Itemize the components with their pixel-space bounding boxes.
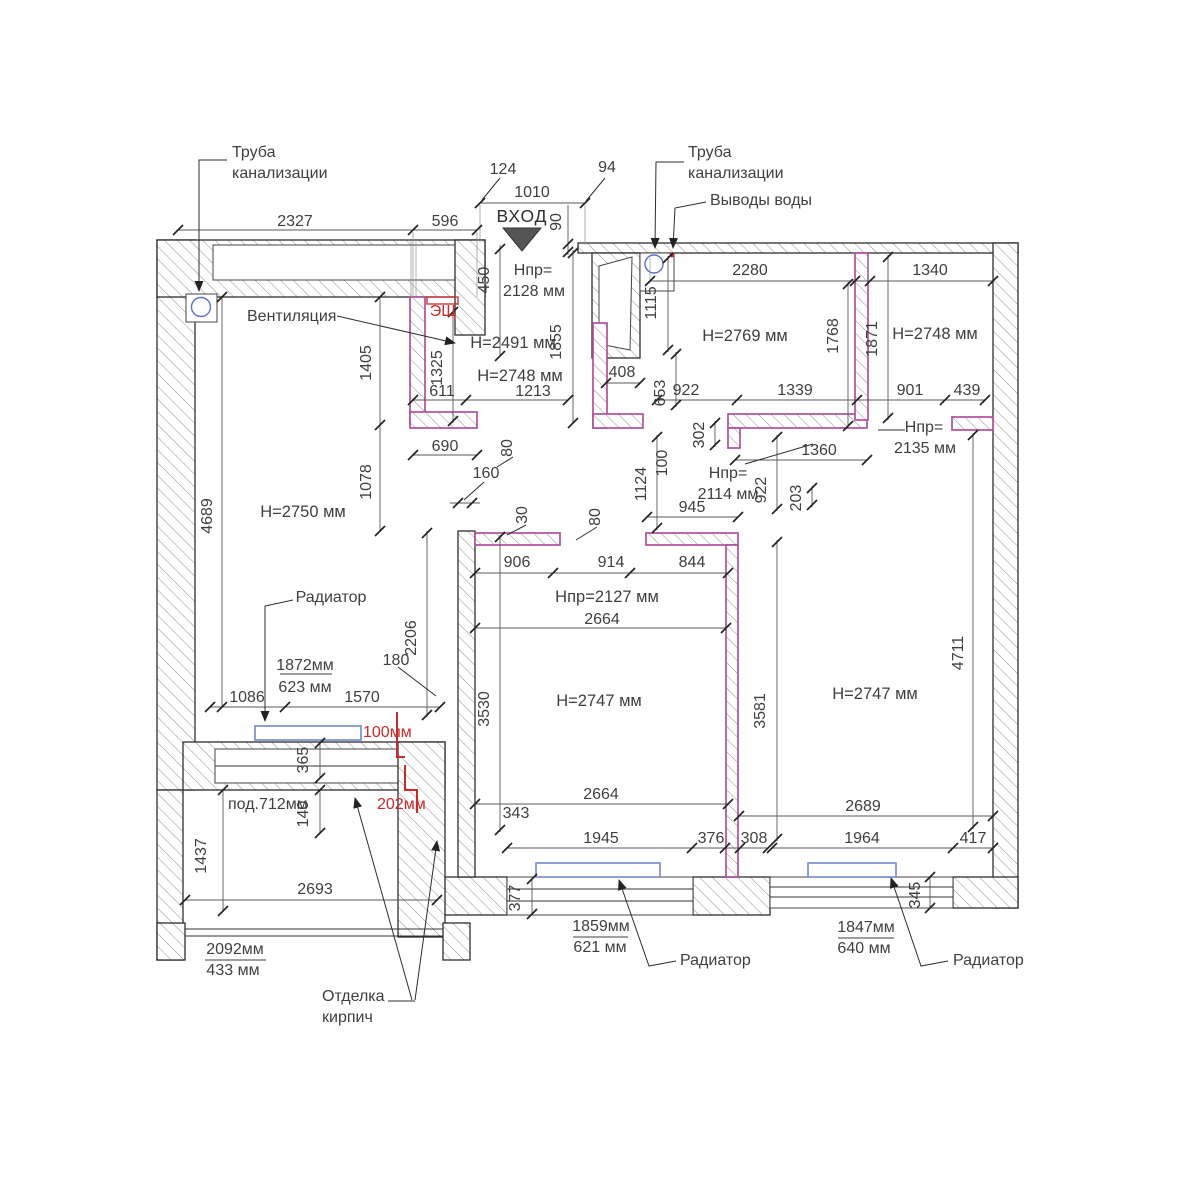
radiator-center bbox=[536, 863, 660, 877]
dim-3581: 3581 bbox=[752, 693, 769, 729]
dim-2693: 2693 bbox=[297, 881, 333, 898]
dim-1570: 1570 bbox=[344, 689, 380, 706]
dim-1964: 1964 bbox=[844, 830, 880, 847]
partition-bath-left bbox=[410, 297, 425, 425]
dim-914: 914 bbox=[598, 554, 625, 571]
label-radiator-left: Радиатор bbox=[296, 589, 367, 606]
label-brick-finish-1: Отделка bbox=[322, 988, 385, 1005]
wall-center-room-left bbox=[458, 531, 475, 877]
dim-653: 653 bbox=[652, 380, 669, 407]
red-step-top-label: 100мм bbox=[363, 724, 412, 741]
dim-1945: 1945 bbox=[583, 830, 619, 847]
dim-408: 408 bbox=[609, 364, 636, 381]
wall-top-right-thin bbox=[578, 243, 1018, 253]
floor-plan-drawing: Труба канализации Труба канализации Выво… bbox=[0, 0, 1200, 1201]
dim-439: 439 bbox=[954, 382, 981, 399]
dim-30: 30 bbox=[514, 506, 531, 524]
dim-377: 377 bbox=[507, 885, 524, 912]
partition-hall-stub bbox=[728, 428, 740, 448]
wall-pier-bottom-left bbox=[440, 877, 507, 915]
dim-2206: 2206 bbox=[403, 620, 420, 656]
dim-140: 140 bbox=[295, 801, 312, 828]
window-bay-center bbox=[507, 877, 693, 915]
opening-hall-label: Hпр= bbox=[709, 465, 747, 482]
height-top-right-room: H=2748 мм bbox=[892, 325, 978, 343]
dim-2664-top: 2664 bbox=[584, 611, 620, 628]
sewer-pipe-right-icon bbox=[645, 255, 663, 273]
opening-entry-value: 2128 мм bbox=[503, 283, 565, 300]
height-right-room: H=2747 мм bbox=[832, 685, 918, 703]
partition-center-right bbox=[726, 545, 738, 877]
dim-1124: 1124 bbox=[633, 467, 650, 502]
dim-302: 302 bbox=[691, 422, 708, 449]
dim-1340: 1340 bbox=[912, 262, 948, 279]
label-brick-finish-2: кирпич bbox=[322, 1009, 373, 1026]
wall-right bbox=[993, 243, 1018, 908]
radiator-left bbox=[255, 726, 361, 740]
label-sewer-right-1: Труба bbox=[688, 144, 732, 161]
label-sewer-left-2: канализации bbox=[232, 165, 328, 182]
red-step-bottom-label: 202мм bbox=[377, 796, 426, 813]
dim-4689: 4689 bbox=[199, 498, 216, 534]
dim-203: 203 bbox=[788, 485, 805, 512]
dim-124: 124 bbox=[490, 161, 517, 178]
opening-center-door: Hпр=2127 мм bbox=[555, 588, 659, 606]
label-electrical-panel: ЭЩ bbox=[430, 303, 457, 320]
window-niche-top bbox=[213, 245, 455, 280]
height-left-room: H=2750 мм bbox=[260, 503, 346, 521]
partition-center-top-left bbox=[475, 533, 560, 545]
dim-1213: 1213 bbox=[515, 383, 551, 400]
opening-right-label: Hпр= bbox=[905, 419, 943, 436]
dim-922-top: 922 bbox=[673, 382, 700, 399]
dim-2664-bottom: 2664 bbox=[583, 786, 619, 803]
dim-2689: 2689 bbox=[845, 798, 881, 815]
dim-80-b: 80 bbox=[587, 508, 604, 526]
dim-690: 690 bbox=[432, 438, 459, 455]
wall-corner-bottom-right bbox=[953, 877, 1018, 908]
partition-right-door-stub bbox=[952, 417, 993, 430]
radiator-loggia-height: 433 мм bbox=[206, 962, 259, 979]
dim-160: 160 bbox=[473, 465, 500, 482]
dim-180: 180 bbox=[383, 652, 410, 669]
partition-shaft-left bbox=[593, 323, 607, 428]
partition-hall-left bbox=[593, 414, 643, 428]
dim-906: 906 bbox=[504, 554, 531, 571]
dim-844: 844 bbox=[679, 554, 706, 571]
radiator-center-length: 1859мм bbox=[572, 918, 630, 935]
label-radiator-right: Радиатор bbox=[953, 952, 1024, 969]
label-sewer-right-2: канализации bbox=[688, 165, 784, 182]
partition-center-top-right bbox=[646, 533, 738, 545]
wall-loggia-corner-left bbox=[157, 923, 185, 960]
dim-450: 450 bbox=[476, 267, 493, 294]
radiator-left-length: 1872мм bbox=[276, 657, 334, 674]
radiator-center-height: 621 мм bbox=[573, 939, 626, 956]
dim-922-vert: 922 bbox=[753, 477, 770, 504]
sewer-pipe-left-icon bbox=[192, 298, 211, 317]
radiator-right-length: 1847мм bbox=[837, 919, 895, 936]
height-center-room: H=2747 мм bbox=[556, 692, 642, 710]
dim-901: 901 bbox=[897, 382, 924, 399]
dim-1871: 1871 bbox=[864, 321, 881, 357]
opening-hall-value: 2114 мм bbox=[698, 486, 759, 503]
radiator-right bbox=[808, 863, 896, 877]
label-water-outlets: Выводы воды bbox=[710, 192, 812, 209]
height-kitchen: H=2769 мм bbox=[702, 327, 788, 345]
dim-345: 345 bbox=[907, 882, 924, 909]
radiator-left-height: 623 мм bbox=[278, 679, 331, 696]
dim-1855: 1855 bbox=[548, 324, 565, 360]
wall-pier-bottom-center bbox=[693, 877, 770, 915]
dim-1405: 1405 bbox=[358, 345, 375, 381]
label-radiator-center: Радиатор bbox=[680, 952, 751, 969]
floor-plan-page: Труба канализации Труба канализации Выво… bbox=[0, 0, 1200, 1201]
dim-1768: 1768 bbox=[825, 318, 842, 354]
dim-1360: 1360 bbox=[801, 442, 837, 459]
opening-right-value: 2135 мм bbox=[894, 440, 956, 457]
partition-bath-bottom bbox=[410, 412, 477, 428]
dim-1339: 1339 bbox=[777, 382, 813, 399]
dim-3530: 3530 bbox=[476, 691, 493, 727]
radiator-right-height: 640 мм bbox=[837, 940, 890, 957]
dim-365: 365 bbox=[295, 747, 312, 774]
dim-945: 945 bbox=[679, 499, 706, 516]
dim-596: 596 bbox=[432, 213, 459, 230]
dim-1078: 1078 bbox=[358, 464, 375, 500]
dim-1086: 1086 bbox=[229, 689, 265, 706]
dim-90: 90 bbox=[548, 213, 565, 231]
wall-loggia-corner-right bbox=[443, 923, 470, 960]
dim-4711: 4711 bbox=[950, 636, 967, 671]
height-entry-hall-upper: H=2491 мм bbox=[470, 334, 556, 352]
dim-611: 611 bbox=[429, 383, 455, 400]
dim-1115: 1115 bbox=[643, 286, 660, 319]
dim-2327: 2327 bbox=[277, 213, 313, 230]
dim-1437: 1437 bbox=[193, 838, 210, 874]
dim-2280: 2280 bbox=[732, 262, 768, 279]
radiator-loggia-length: 2092мм bbox=[206, 941, 264, 958]
label-entrance: ВХОД bbox=[496, 206, 547, 226]
label-ventilation: Вентиляция bbox=[247, 308, 336, 325]
opening-entry-label: Hпр= bbox=[514, 262, 552, 279]
partition-hall-right bbox=[728, 414, 867, 428]
dim-376: 376 bbox=[698, 830, 725, 847]
dim-308: 308 bbox=[741, 830, 768, 847]
dim-80-a: 80 bbox=[499, 439, 516, 457]
dim-1325: 1325 bbox=[429, 350, 446, 386]
entrance-arrow-icon bbox=[503, 228, 541, 251]
dim-100: 100 bbox=[654, 450, 671, 477]
label-sewer-left-1: Труба bbox=[232, 144, 276, 161]
dim-94: 94 bbox=[598, 159, 616, 176]
dim-1010: 1010 bbox=[514, 184, 550, 201]
dim-417: 417 bbox=[960, 830, 987, 847]
dim-343: 343 bbox=[503, 805, 530, 822]
